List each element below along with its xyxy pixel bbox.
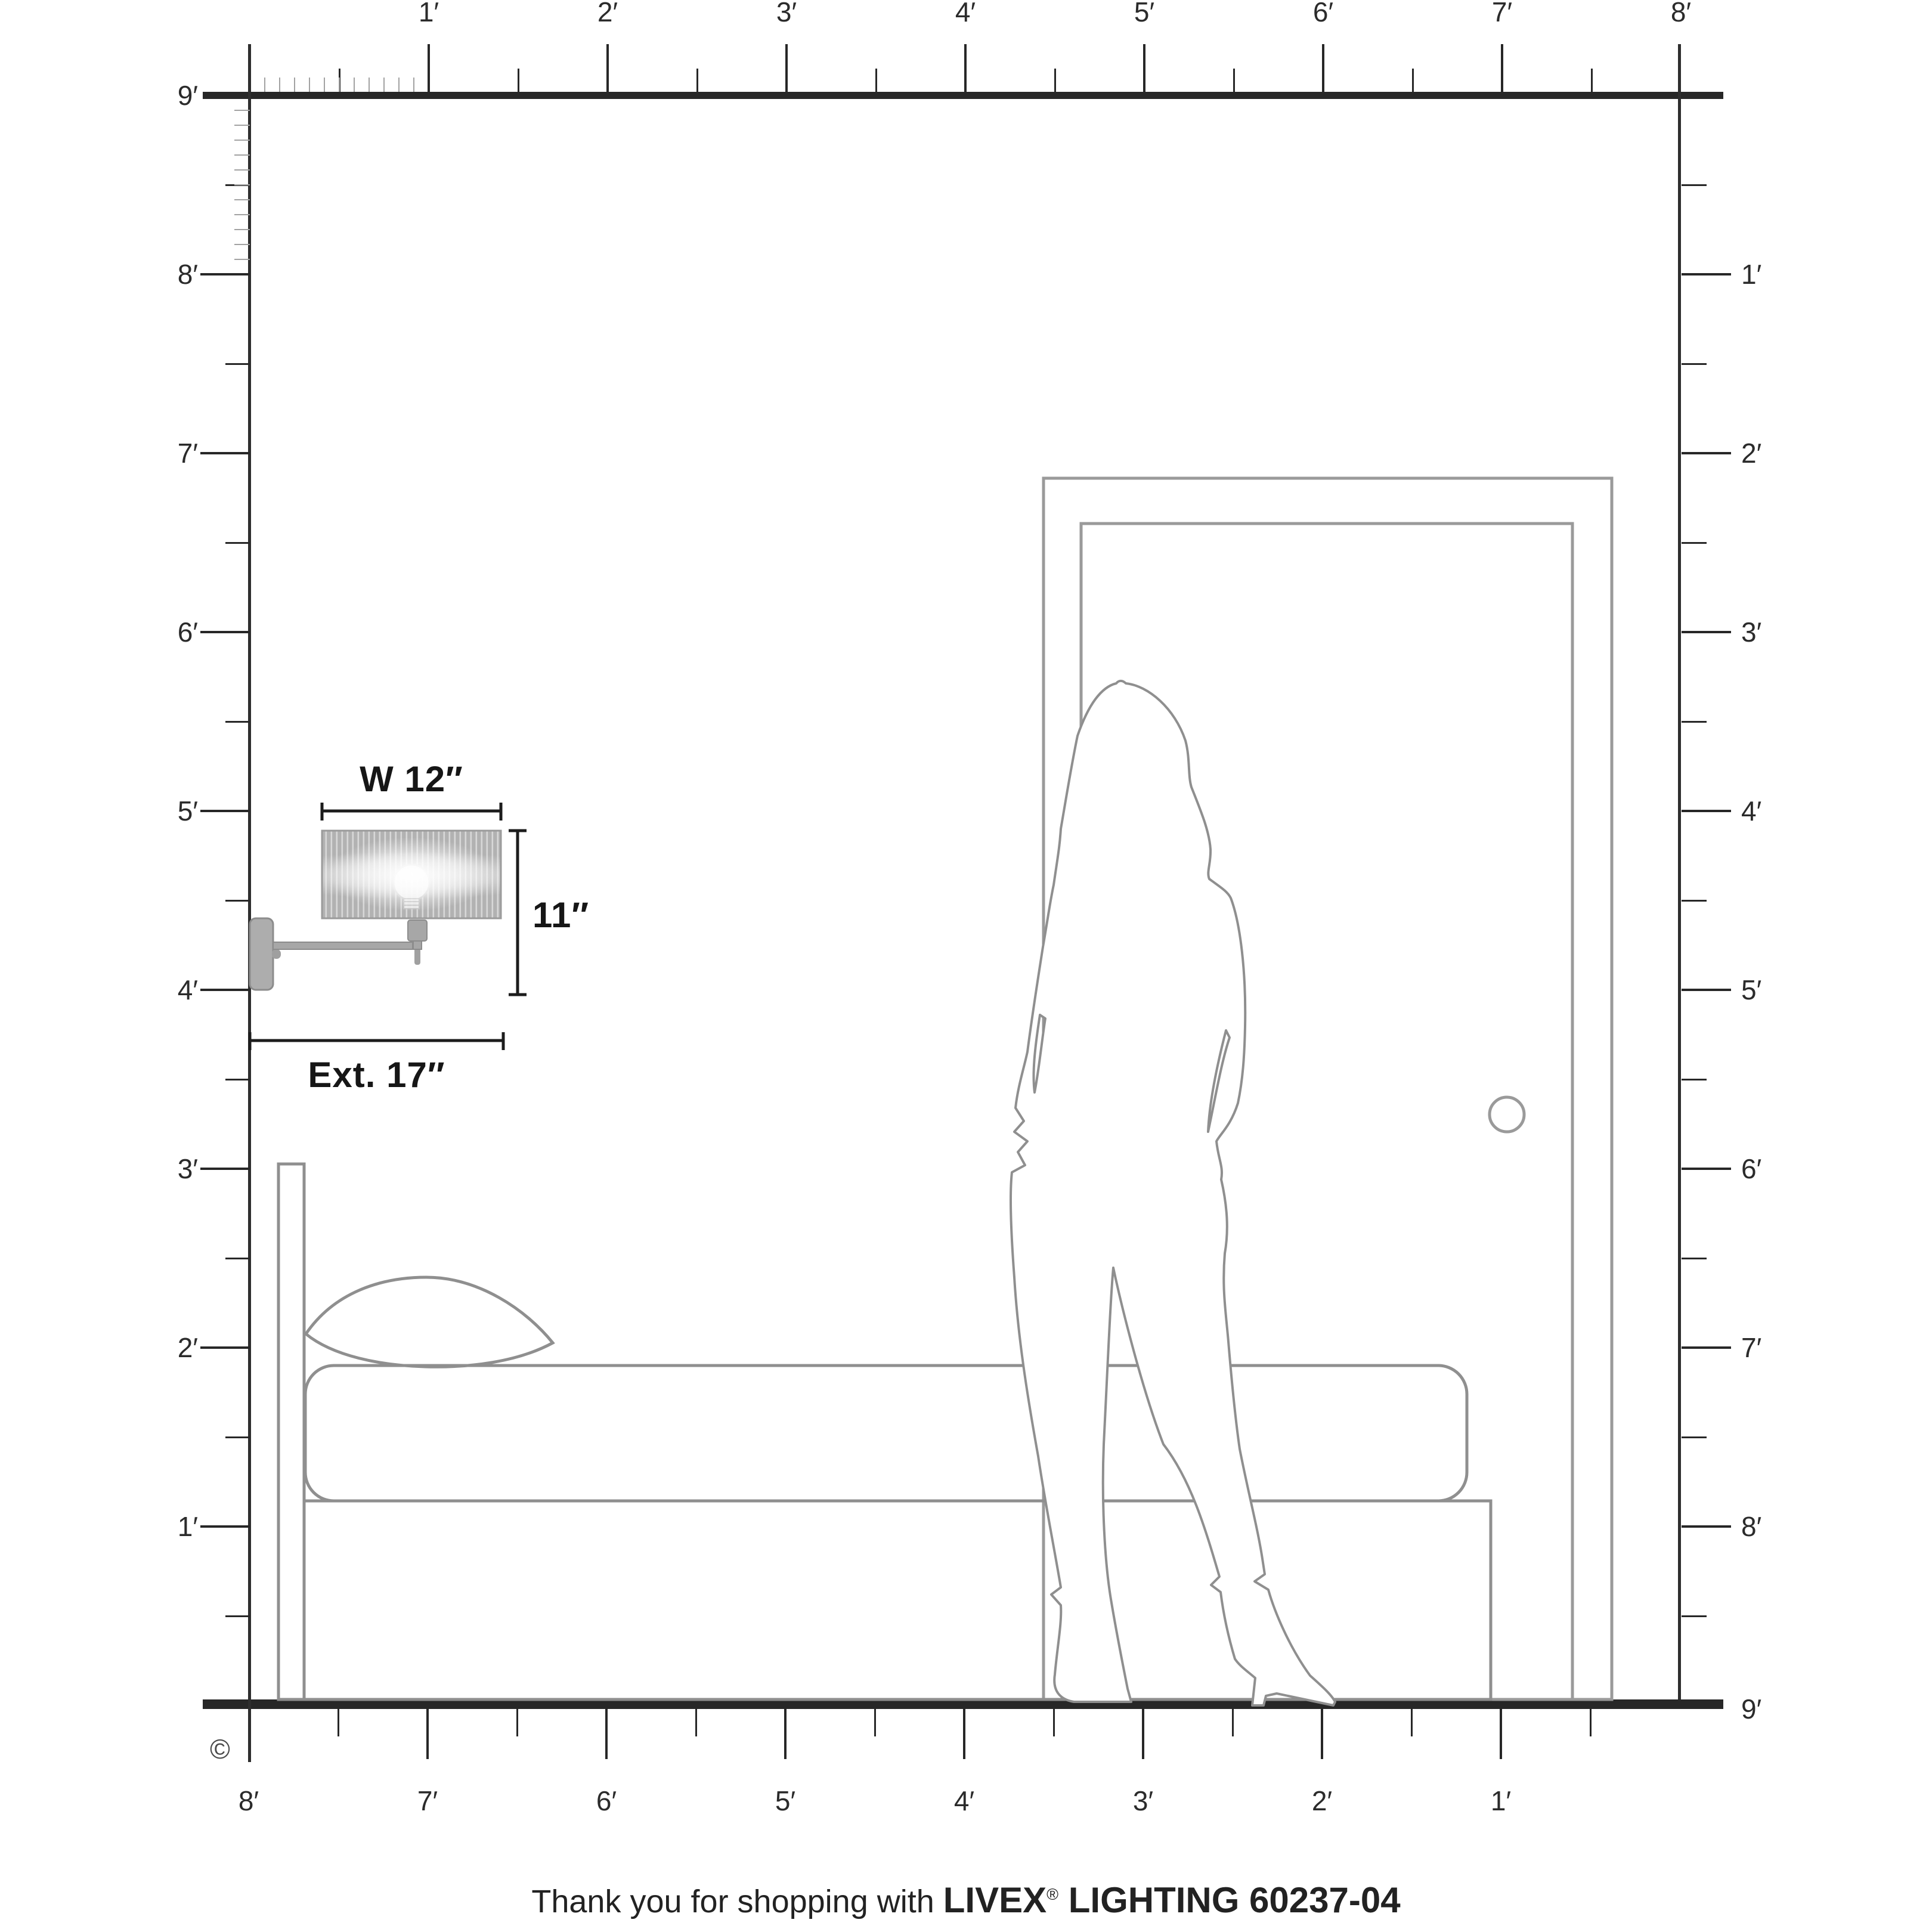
woman-silhouette bbox=[1011, 681, 1335, 1705]
shade-glow-wide bbox=[256, 852, 566, 899]
footer-prefix: Thank you for shopping with bbox=[531, 1884, 943, 1919]
bed-pillow bbox=[306, 1277, 553, 1367]
bed-headboard bbox=[278, 1164, 304, 1699]
room-scene bbox=[0, 0, 1932, 1932]
sconce-swing-arm bbox=[273, 942, 413, 949]
sconce-plate-knob bbox=[272, 949, 281, 959]
sconce-shade bbox=[256, 831, 566, 918]
sconce-wall-plate bbox=[250, 918, 273, 990]
bed bbox=[278, 1164, 1491, 1699]
height-dimension-label: 11″ bbox=[532, 894, 589, 936]
bed-mattress bbox=[305, 1366, 1467, 1501]
width-dimension-label: W 12″ bbox=[322, 758, 501, 800]
sconce-socket bbox=[408, 920, 427, 941]
copyright-symbol: © bbox=[210, 1733, 230, 1765]
sconce-arm-finial bbox=[414, 948, 420, 965]
door-knob bbox=[1490, 1097, 1524, 1132]
dimension-diagram-page: 1′2′3′4′5′6′7′8′ 9′8′7′6′5′4′3′2′1′ 1′2′… bbox=[0, 0, 1932, 1932]
extension-dimension-label: Ext. 17″ bbox=[250, 1054, 503, 1095]
bed-base bbox=[305, 1501, 1491, 1699]
registered-mark: ® bbox=[1046, 1885, 1058, 1903]
footer-text: Thank you for shopping with LIVEX® LIGHT… bbox=[0, 1880, 1932, 1921]
footer-model: LIGHTING 60237-04 bbox=[1058, 1880, 1401, 1920]
brand-name: LIVEX bbox=[943, 1880, 1046, 1920]
